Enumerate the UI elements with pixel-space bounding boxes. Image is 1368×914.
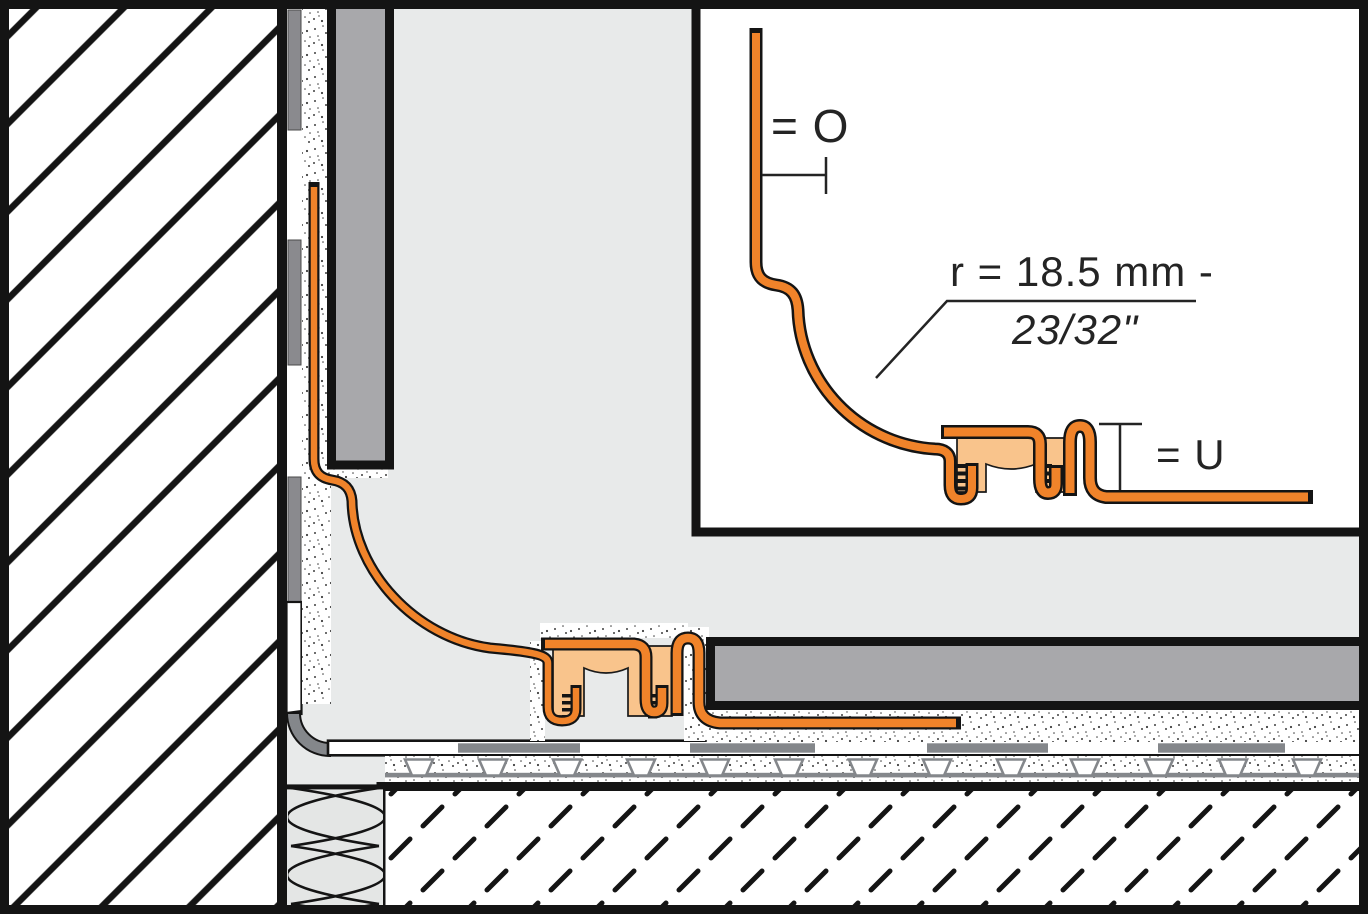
wall-face-line (277, 8, 287, 906)
floor-tile (711, 642, 1368, 706)
floor-membrane-band (328, 741, 1368, 756)
stipple-above-anchor (540, 623, 688, 638)
detail-inset: = O r = 18.5 mm - 23/32" = U (696, 0, 1368, 532)
wall-tile (332, 4, 390, 465)
bonding-bar (288, 477, 301, 604)
edge-insulation-strip (282, 784, 385, 914)
masonry-hatch-pattern (8, 8, 280, 906)
bonding-bar (288, 10, 301, 130)
screed (381, 787, 1368, 910)
technical-diagram-page: = O r = 18.5 mm - 23/32" = U (0, 0, 1368, 914)
label-radius-metric: r = 18.5 mm - (950, 248, 1214, 295)
membrane-segment (1158, 743, 1285, 752)
membrane-segment (927, 743, 1048, 752)
cross-section-drawing: = O r = 18.5 mm - 23/32" = U (0, 0, 1368, 914)
membrane-vertical-band (287, 602, 302, 714)
dovetail-studs (385, 756, 1368, 777)
membrane-segment (458, 743, 580, 752)
label-dim-u: = U (1156, 431, 1226, 478)
label-dim-o: = O (771, 100, 849, 152)
insulation-top-line (282, 784, 383, 789)
masonry-wall (8, 8, 280, 906)
label-radius-imperial: 23/32" (1011, 306, 1139, 353)
bonding-bar (288, 240, 301, 365)
membrane-segment (690, 743, 815, 752)
uncoupling-membrane-band (385, 756, 1368, 783)
screed-hatch (386, 791, 1364, 905)
